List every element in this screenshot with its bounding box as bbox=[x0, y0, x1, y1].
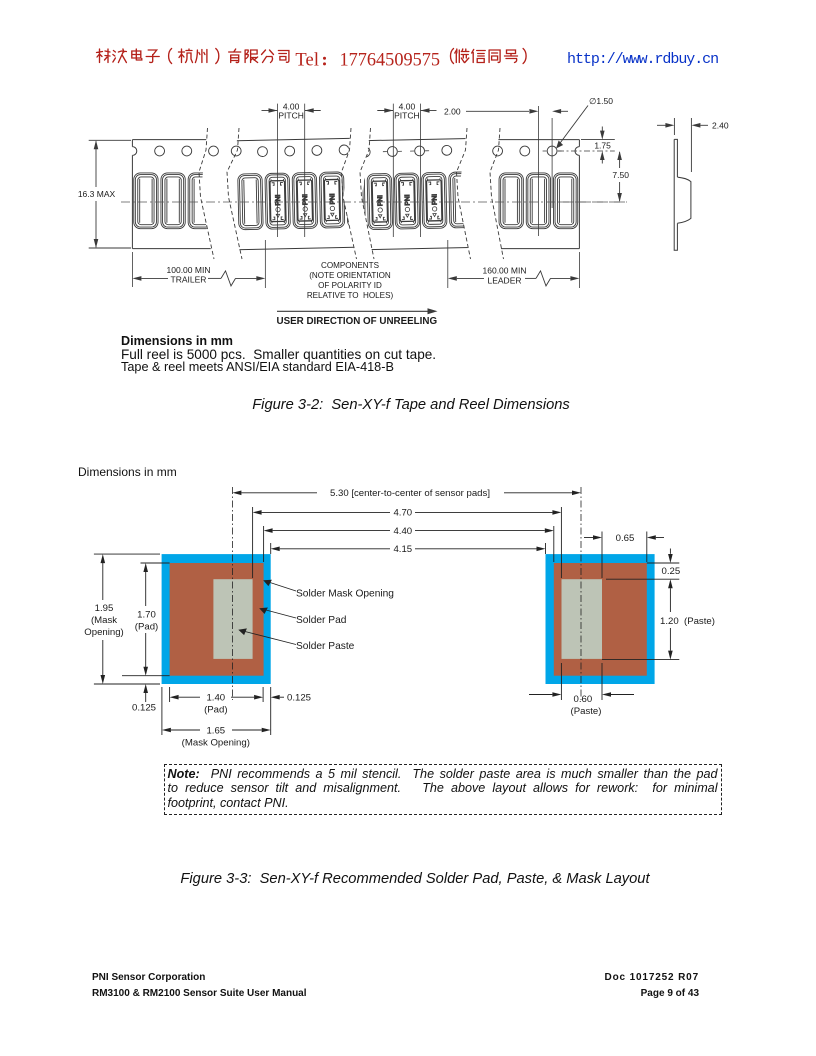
svg-text:17764509575: 17764509575 bbox=[340, 50, 441, 70]
svg-text:(Pad): (Pad) bbox=[135, 622, 158, 633]
svg-text:1.40: 1.40 bbox=[206, 693, 225, 704]
svg-text:COMPONENTS: COMPONENTS bbox=[321, 261, 380, 270]
svg-text:1.70: 1.70 bbox=[137, 610, 156, 621]
svg-text:2.40: 2.40 bbox=[712, 121, 729, 131]
svg-text:(NOTE ORIENTATION: (NOTE ORIENTATION bbox=[309, 271, 391, 280]
svg-text:Solder Pad: Solder Pad bbox=[296, 615, 347, 626]
svg-text:(Mask Opening): (Mask Opening) bbox=[182, 738, 250, 749]
svg-text:4.70: 4.70 bbox=[393, 508, 412, 519]
svg-text:(Mask: (Mask bbox=[91, 615, 117, 626]
svg-text:0.125: 0.125 bbox=[287, 693, 311, 704]
svg-text:0.60: 0.60 bbox=[574, 694, 593, 705]
svg-text:1.75: 1.75 bbox=[594, 141, 611, 151]
svg-text:(Pad): (Pad) bbox=[204, 704, 227, 715]
svg-text:∅1.50: ∅1.50 bbox=[589, 96, 613, 106]
svg-text:0.65: 0.65 bbox=[616, 533, 635, 544]
svg-text:Opening): Opening) bbox=[84, 627, 123, 638]
svg-text:7.50: 7.50 bbox=[612, 170, 629, 180]
svg-text:OF POLARITY ID: OF POLARITY ID bbox=[318, 281, 382, 290]
svg-text:0.125: 0.125 bbox=[132, 703, 156, 714]
svg-text:RELATIVE TO HOLES): RELATIVE TO HOLES) bbox=[307, 291, 394, 300]
svg-text:TRAILER: TRAILER bbox=[171, 275, 207, 285]
svg-text:1.65: 1.65 bbox=[206, 725, 225, 736]
svg-text:PITCH: PITCH bbox=[278, 111, 304, 121]
svg-text:2.00: 2.00 bbox=[444, 107, 461, 117]
svg-text:4.15: 4.15 bbox=[393, 544, 412, 555]
svg-text:PITCH: PITCH bbox=[394, 111, 420, 121]
svg-text:Solder Mask Opening: Solder Mask Opening bbox=[296, 588, 394, 599]
svg-text:Solder Paste: Solder Paste bbox=[296, 641, 355, 652]
svg-text:LEADER: LEADER bbox=[487, 275, 521, 285]
svg-text:1.20 (Paste): 1.20 (Paste) bbox=[660, 616, 715, 627]
svg-text:(Paste): (Paste) bbox=[571, 706, 602, 717]
svg-text:16.3 MAX: 16.3 MAX bbox=[78, 189, 116, 199]
svg-text:0.25: 0.25 bbox=[662, 566, 681, 577]
svg-text:USER DIRECTION OF UNREELING: USER DIRECTION OF UNREELING bbox=[277, 316, 438, 327]
svg-text:1.95: 1.95 bbox=[95, 603, 114, 614]
svg-text:5.30 [center-to-center of sens: 5.30 [center-to-center of sensor pads] bbox=[330, 488, 490, 499]
svg-text:Tel: Tel bbox=[295, 50, 319, 70]
svg-text:160.00 MIN: 160.00 MIN bbox=[483, 266, 527, 276]
svg-text:4.40: 4.40 bbox=[393, 526, 412, 537]
